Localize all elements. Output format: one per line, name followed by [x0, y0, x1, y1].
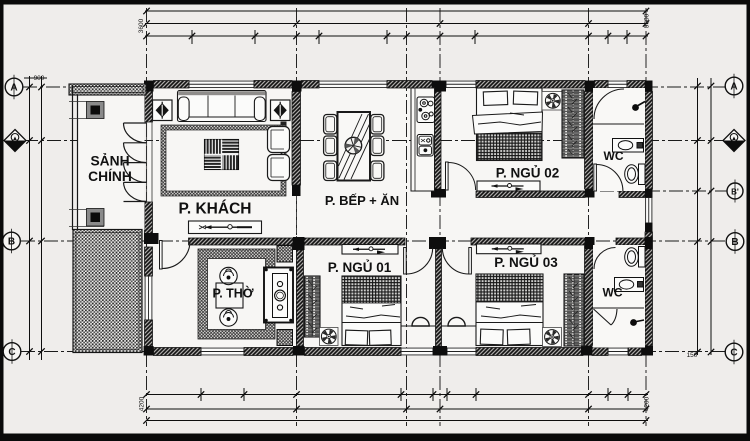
svg-text:P. NGỦ 03: P. NGỦ 03 — [494, 255, 558, 270]
svg-text:▲: ▲ — [731, 136, 737, 142]
svg-text:WC: WC — [603, 286, 623, 300]
svg-text:▲: ▲ — [12, 136, 18, 142]
svg-text:P. NGỦ 01: P. NGỦ 01 — [328, 260, 392, 275]
svg-text:4200: 4200 — [139, 396, 146, 411]
svg-text:4200: 4200 — [644, 396, 651, 411]
svg-text:150: 150 — [687, 352, 698, 359]
svg-text:CHÍNH: CHÍNH — [88, 168, 132, 184]
svg-text:WC: WC — [604, 149, 624, 163]
svg-text:900: 900 — [34, 75, 45, 82]
svg-text:P. BẾP + ĂN: P. BẾP + ĂN — [325, 193, 399, 208]
svg-text:P. NGỦ 02: P. NGỦ 02 — [496, 166, 560, 181]
svg-text:3600: 3600 — [644, 13, 651, 28]
svg-text:3600: 3600 — [138, 18, 145, 33]
svg-text:SẢNH: SẢNH — [90, 153, 129, 169]
svg-text:P. THỜ: P. THỜ — [213, 286, 254, 301]
svg-text:P. KHÁCH: P. KHÁCH — [179, 201, 252, 218]
